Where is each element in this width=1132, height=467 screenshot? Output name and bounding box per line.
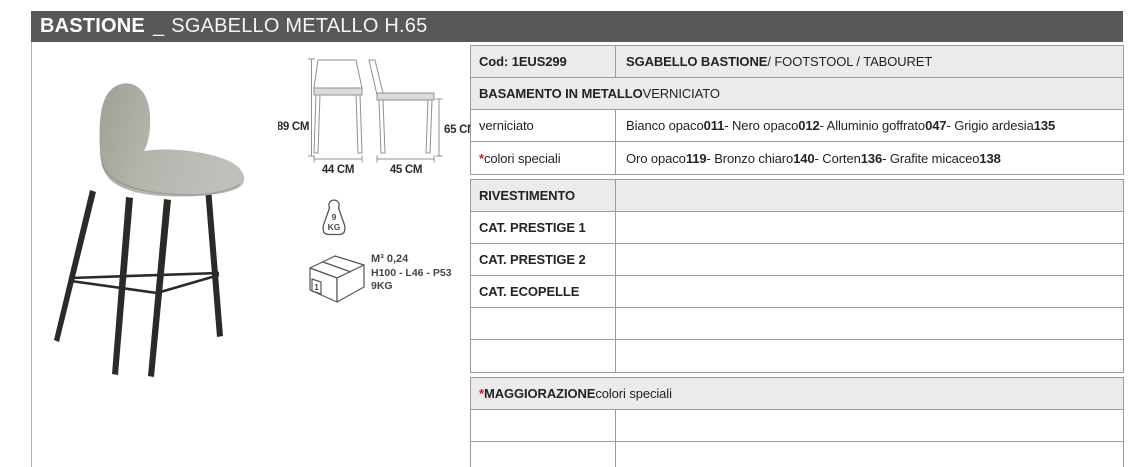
cat-ecopelle-value [616, 276, 1123, 307]
empty-label [471, 442, 616, 467]
empty-value [616, 340, 1123, 372]
spec-row-cat-prestige-1: CAT. PRESTIGE 1 [471, 212, 1123, 244]
basamento-header: BASAMENTO IN METALLO VERNICIATO [471, 78, 1123, 109]
spec-row-empty [471, 410, 1123, 442]
verniciato-colors: Bianco opaco 011 - Nero opaco 012 - Allu… [616, 110, 1123, 141]
weight-kg-icon: 9 KG [312, 196, 356, 242]
cat-prestige-1-value [616, 212, 1123, 243]
stool-leg-back-right [205, 187, 223, 337]
stool-footrest [71, 273, 219, 293]
page-title: SGABELLO METALLO H.65 [171, 15, 427, 38]
spec-row-rivestimento-header: RIVESTIMENTO [471, 180, 1123, 212]
packaging-volume: M³ 0,24 [371, 253, 452, 267]
stool-leg-front-right [148, 199, 171, 377]
spec-row-empty [471, 308, 1123, 340]
product-series-name: BASTIONE [40, 15, 145, 38]
stool-seat-shell [100, 83, 245, 196]
spec-row-empty [471, 340, 1123, 372]
maggiorazione-note: *MAGGIORAZIONE colori speciali [471, 378, 1123, 409]
spec-section-maggiorazione: *MAGGIORAZIONE colori speciali [470, 377, 1124, 467]
empty-value [616, 442, 1123, 467]
dim-width-label: 44 CM [322, 164, 354, 176]
dimension-drawings: 89 CM 44 CM 65 CM 45 CM [278, 52, 476, 182]
catalog-page: BASTIONE _ SGABELLO METALLO H.65 [0, 0, 1132, 467]
title-separator: _ [153, 15, 164, 38]
empty-label [471, 410, 616, 441]
dim-total-height-label: 89 CM [278, 121, 309, 133]
weight-value: 9 [332, 212, 337, 222]
spec-table: Cod: 1EUS299 SGABELLO BASTIONE / FOOTSTO… [470, 45, 1124, 467]
empty-value [616, 308, 1123, 339]
spec-section-rivestimento: RIVESTIMENTO CAT. PRESTIGE 1 CAT. PRESTI… [470, 179, 1124, 373]
cat-prestige-1-label: CAT. PRESTIGE 1 [471, 212, 616, 243]
spec-row-cat-prestige-2: CAT. PRESTIGE 2 [471, 244, 1123, 276]
title-bar: BASTIONE _ SGABELLO METALLO H.65 [31, 11, 1123, 42]
spec-row-colori-speciali: * colori speciali Oro opaco 119 - Bronzo… [471, 142, 1123, 174]
empty-label [471, 340, 616, 372]
cat-ecopelle-label: CAT. ECOPELLE [471, 276, 616, 307]
spec-row-cod: Cod: 1EUS299 SGABELLO BASTIONE / FOOTSTO… [471, 46, 1123, 78]
left-rule-divider [31, 42, 32, 467]
stool-leg-back-left [54, 190, 96, 342]
colori-speciali-colors: Oro opaco 119 - Bronzo chiaro 140 - Cort… [616, 142, 1123, 174]
product-photo-stool [38, 52, 273, 382]
rivestimento-header: RIVESTIMENTO [471, 180, 616, 211]
packaging-weight: 9KG [371, 280, 452, 294]
dim-depth-label: 45 CM [390, 164, 422, 176]
package-box-icon: 1 [307, 252, 369, 304]
package-count: 1 [314, 283, 319, 292]
spec-row-maggiorazione: *MAGGIORAZIONE colori speciali [471, 378, 1123, 410]
empty-label [471, 308, 616, 339]
verniciato-label: verniciato [471, 110, 616, 141]
packaging-info: M³ 0,24 H100 - L46 - P53 9KG [371, 253, 452, 294]
rivestimento-header-value [616, 180, 1123, 211]
spec-section-base: Cod: 1EUS299 SGABELLO BASTIONE / FOOTSTO… [470, 45, 1124, 175]
packaging-box-size: H100 - L46 - P53 [371, 267, 452, 281]
colori-speciali-label: * colori speciali [471, 142, 616, 174]
spec-row-cat-ecopelle: CAT. ECOPELLE [471, 276, 1123, 308]
cat-prestige-2-value [616, 244, 1123, 275]
weight-unit: KG [328, 222, 341, 232]
spec-row-empty [471, 442, 1123, 467]
spec-row-basamento-header: BASAMENTO IN METALLO VERNICIATO [471, 78, 1123, 110]
product-code: Cod: 1EUS299 [471, 46, 616, 77]
empty-value [616, 410, 1123, 441]
cat-prestige-2-label: CAT. PRESTIGE 2 [471, 244, 616, 275]
spec-row-verniciato: verniciato Bianco opaco 011 - Nero opaco… [471, 110, 1123, 142]
product-name: SGABELLO BASTIONE / FOOTSTOOL / TABOURET [616, 46, 1123, 77]
